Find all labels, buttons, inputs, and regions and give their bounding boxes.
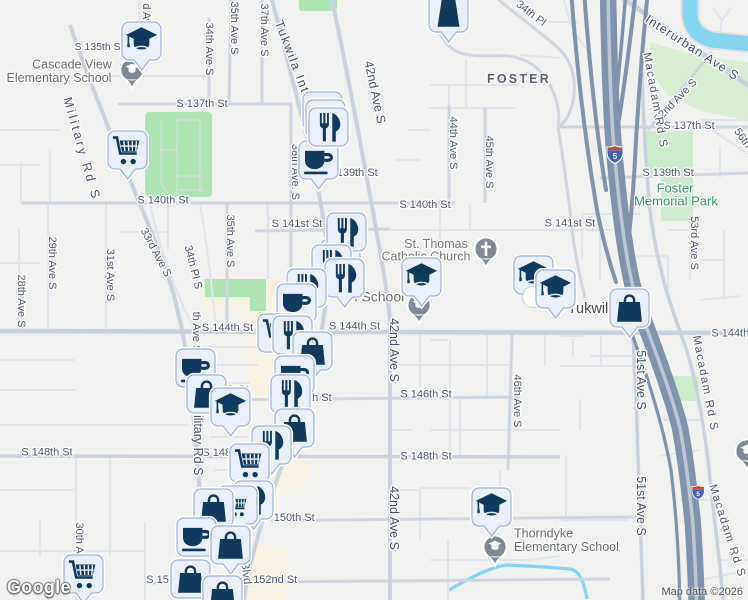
svg-text:46th Ave S: 46th Ave S [511, 374, 523, 427]
svg-text:S 141st St: S 141st St [545, 218, 596, 230]
svg-text:42nd Ave S: 42nd Ave S [387, 486, 401, 550]
svg-text:S 146th St: S 146th St [400, 389, 451, 401]
svg-text:S 144th St: S 144th St [329, 321, 380, 333]
svg-text:Thorndyke: Thorndyke [514, 527, 573, 541]
svg-text:Military Rd S: Military Rd S [191, 405, 205, 476]
svg-text:S 137th St: S 137th St [176, 98, 227, 110]
svg-text:35th Ave S: 35th Ave S [228, 1, 240, 54]
svg-text:34th Ave S: 34th Ave S [203, 22, 215, 75]
svg-text:42nd Ave S: 42nd Ave S [387, 318, 401, 382]
svg-text:45th Ave S: 45th Ave S [483, 135, 495, 188]
svg-text:S 140th St: S 140th St [137, 195, 188, 207]
svg-text:th Ave S: th Ave S [190, 312, 202, 353]
svg-text:5: 5 [696, 491, 700, 498]
svg-text:35th Ave S: 35th Ave S [224, 214, 236, 267]
svg-text:5: 5 [613, 151, 618, 161]
svg-text:Elementary School: Elementary School [514, 540, 619, 554]
svg-text:Elementary School: Elementary School [7, 71, 112, 85]
svg-text:28th Ave S: 28th Ave S [15, 274, 27, 327]
svg-text:31st Ave S: 31st Ave S [104, 249, 116, 301]
svg-text:53rd Ave S: 53rd Ave S [688, 216, 700, 270]
svg-text:37th Ave S: 37th Ave S [258, 3, 270, 56]
svg-text:Memorial Park: Memorial Park [634, 194, 718, 209]
svg-text:44th Ave S: 44th Ave S [447, 116, 459, 169]
svg-text:FOSTER: FOSTER [487, 72, 551, 86]
svg-text:51st Ave S: 51st Ave S [634, 476, 648, 536]
svg-text:S 137th St: S 137th St [663, 120, 714, 132]
svg-text:Cascade View: Cascade View [32, 58, 113, 72]
svg-text:S 140th St: S 140th St [399, 199, 450, 211]
svg-text:S 148th St: S 148th St [400, 451, 451, 463]
svg-text:S 148th St: S 148th St [21, 447, 72, 459]
svg-text:S 141st St: S 141st St [272, 218, 323, 230]
svg-text:51st Ave S: 51st Ave S [634, 350, 648, 410]
svg-text:29th Ave S: 29th Ave S [46, 236, 58, 289]
svg-text:S 139th St: S 139th St [642, 167, 693, 179]
svg-text:S 144th St: S 144th St [711, 328, 748, 340]
svg-text:S 144th St: S 144th St [202, 322, 253, 334]
svg-text:S 135th St: S 135th St [74, 41, 123, 53]
